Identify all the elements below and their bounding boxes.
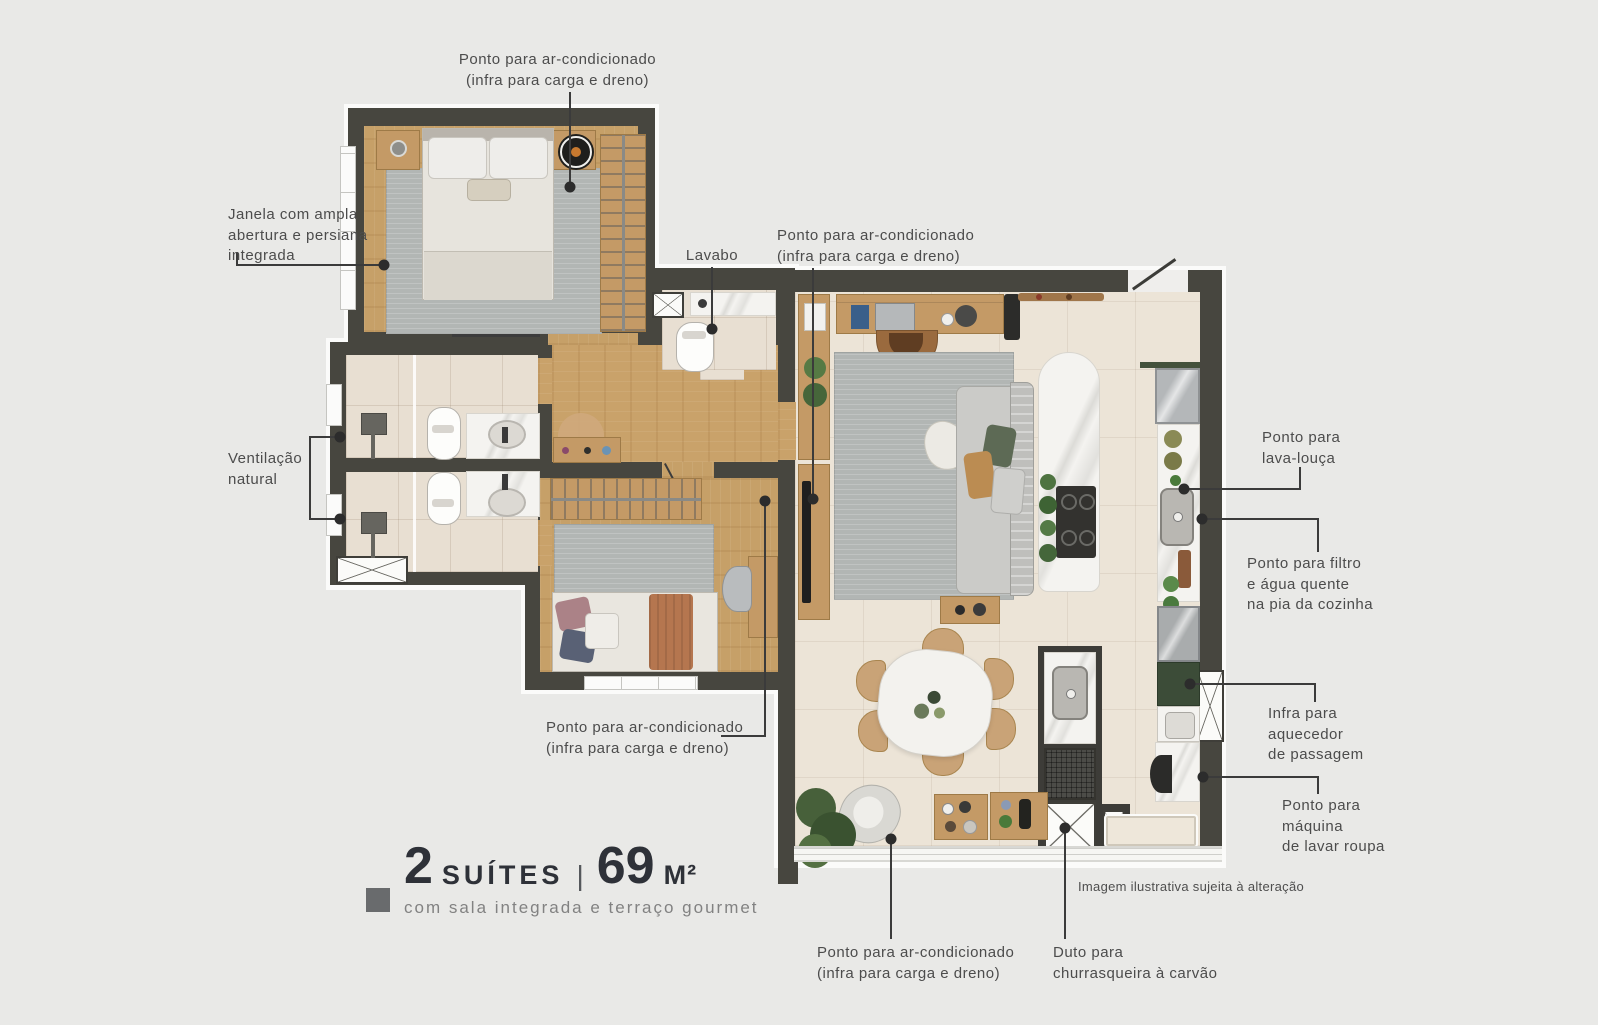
rack-item xyxy=(1036,294,1042,300)
dot-vent-2 xyxy=(335,514,346,525)
bathroom1-faucet xyxy=(502,427,508,443)
bathroom1-glass-divider xyxy=(413,355,416,458)
toilet-seat-line xyxy=(682,331,706,339)
label-ac-suite2: Ponto para ar-condicionado (infra para c… xyxy=(546,718,743,759)
lavabo-door-opening xyxy=(700,370,744,380)
island-plant xyxy=(1040,520,1056,536)
toilet-seat-line xyxy=(432,425,454,433)
bathroom2-shower-head-icon xyxy=(361,512,387,534)
title-subtitle: com sala integrada e terraço gourmet xyxy=(404,898,759,918)
desk-side-cabinet xyxy=(1004,294,1020,340)
entry-wall-rack xyxy=(1018,293,1104,301)
shaft-lavabo xyxy=(652,292,684,318)
laundry-sink xyxy=(1157,706,1200,742)
coffee-item xyxy=(942,803,954,815)
title-main: 2 SUÍTES | 69 M² xyxy=(404,840,759,892)
sofa-side-table xyxy=(940,596,1000,624)
bathroom2-faucet xyxy=(502,474,508,490)
coffee-item xyxy=(945,821,956,832)
decor-dot xyxy=(562,447,569,454)
table-decor xyxy=(933,707,945,719)
lavabo-faucet xyxy=(698,299,707,308)
counter-plant xyxy=(1164,430,1182,448)
dot-lavalouca xyxy=(1179,484,1190,495)
suite1-bed xyxy=(422,128,554,300)
label-ac-terraco: Ponto para ar-condicionado (infra para c… xyxy=(817,943,1014,984)
bar-plant xyxy=(999,815,1012,828)
desk-mug xyxy=(941,313,954,326)
bathroom2-toilet xyxy=(427,472,461,525)
burner xyxy=(1079,494,1095,510)
rack-item xyxy=(1066,294,1072,300)
table-decor xyxy=(927,690,941,704)
bbq-sink xyxy=(1052,666,1088,720)
decor-dot xyxy=(602,446,611,455)
dot-aquecedor xyxy=(1185,679,1196,690)
title-area: 69 xyxy=(597,840,655,892)
leader-maquina-h xyxy=(1203,776,1319,778)
laptop xyxy=(875,303,915,331)
leader-duto xyxy=(1064,828,1066,939)
shaft-kitchen-wall xyxy=(1196,670,1224,742)
label-lavabo: Lavabo xyxy=(672,246,752,267)
suite1-wardrobe xyxy=(600,134,646,332)
dot-maquina xyxy=(1198,772,1209,783)
corridor-console xyxy=(553,437,621,463)
label-ac-suite1: Ponto para ar-condicionado (infra para c… xyxy=(440,50,675,91)
cutting-board xyxy=(1178,550,1191,588)
leader-ac-terraco xyxy=(890,839,892,939)
tv-console xyxy=(798,464,830,620)
shelf-book xyxy=(804,303,826,331)
label-aquecedor: Infra para aquecedor de passagem xyxy=(1268,704,1364,766)
dot-filtro xyxy=(1197,514,1208,525)
bar-item xyxy=(1001,800,1011,810)
island-plant xyxy=(1040,474,1056,490)
disclaimer-text: Imagem ilustrativa sujeita à alteração xyxy=(1078,879,1304,894)
dot-ac-living xyxy=(808,494,819,505)
burner xyxy=(1061,494,1077,510)
label-janela: Janela com ampla abertura e persiana int… xyxy=(228,205,368,267)
counter-burner-green xyxy=(1163,576,1179,592)
shaft-bathrooms xyxy=(336,556,408,584)
suite2-window xyxy=(584,676,698,690)
leader-ac-suite2-v xyxy=(764,501,766,737)
suite2-wardrobe-rail xyxy=(551,498,701,501)
dot-duto xyxy=(1060,823,1071,834)
suite2-rug xyxy=(554,524,714,594)
dot-lavabo xyxy=(707,324,718,335)
side-table-item xyxy=(955,605,965,615)
title-bullet-square xyxy=(366,888,390,912)
suite2-bed xyxy=(552,592,718,672)
bathroom2-glass-divider xyxy=(413,472,416,572)
hall-living-opening xyxy=(778,402,796,460)
leader-lavalouca-v xyxy=(1299,467,1301,489)
suite2-wardrobe xyxy=(550,478,702,520)
leader-ac-suite1 xyxy=(569,92,571,187)
coffee-item xyxy=(963,820,977,834)
leader-aquecedor-v xyxy=(1314,683,1316,702)
leader-filtro-h xyxy=(1202,518,1319,520)
suite1-blanket-fold xyxy=(424,251,552,300)
suite2-pillow xyxy=(585,613,619,649)
island-plant xyxy=(1039,496,1057,514)
dot-ac-suite1 xyxy=(565,182,576,193)
title-separator: | xyxy=(572,862,587,892)
suite1-pillow-right xyxy=(489,137,548,179)
suite2-desk-chair xyxy=(722,566,752,612)
thermos xyxy=(1019,799,1031,829)
shelf-plant xyxy=(803,383,827,407)
suite2-desk xyxy=(748,556,778,638)
dot-ac-suite2 xyxy=(760,496,771,507)
decor-dot xyxy=(584,447,591,454)
bathroom2-sink xyxy=(488,488,526,517)
dot-janela xyxy=(379,260,390,271)
laundry-sink-basin xyxy=(1165,712,1195,739)
bathroom1-shower-arm xyxy=(371,433,375,459)
label-duto: Duto para churrasqueira à carvão xyxy=(1053,943,1217,984)
title-type: SUÍTES xyxy=(442,862,564,892)
label-maquina: Ponto para máquina de lavar roupa xyxy=(1282,796,1385,858)
title-content: 2 SUÍTES | 69 M² com sala integrada e te… xyxy=(404,840,759,918)
suite1-wardrobe-rail xyxy=(622,135,625,331)
suite1-pillow-left xyxy=(428,137,487,179)
burner xyxy=(1079,530,1095,546)
notebook xyxy=(851,305,869,329)
label-filtro: Ponto para filtro e água quente na pia d… xyxy=(1247,554,1373,616)
bbq-sink-drain xyxy=(1066,689,1076,699)
bathroom1-shower-head-icon xyxy=(361,413,387,435)
suite1-ceiling-fan-icon xyxy=(560,136,592,168)
armchair-cushion xyxy=(849,793,887,833)
burner xyxy=(1061,530,1077,546)
bathroom1-door-opening xyxy=(538,358,552,404)
leader-filtro-v xyxy=(1317,518,1319,552)
table-decor xyxy=(913,703,929,719)
leader-vent-v xyxy=(309,436,311,520)
dot-ac-terraco xyxy=(886,834,897,845)
leader-lavabo xyxy=(711,267,713,328)
fridge xyxy=(1155,368,1200,424)
desk-lamp xyxy=(955,305,977,327)
terrace-glass-railing xyxy=(794,846,1222,862)
terrace-sideboard-bar xyxy=(990,792,1048,840)
sofa-pillow-gray xyxy=(990,467,1026,516)
island-plant xyxy=(1039,544,1057,562)
bathroom2-door-opening xyxy=(538,520,552,566)
kitchen-sink xyxy=(1160,488,1194,546)
label-ac-living: Ponto para ar-condicionado (infra para c… xyxy=(777,226,974,267)
desk xyxy=(836,294,1004,334)
leader-ac-living xyxy=(812,268,814,499)
terrace-bench xyxy=(1104,814,1198,848)
terrace-sideboard-coffee xyxy=(934,794,988,840)
leader-maquina-v xyxy=(1317,776,1319,794)
title-block: 2 SUÍTES | 69 M² com sala integrada e te… xyxy=(366,840,759,918)
dot-vent-1 xyxy=(335,432,346,443)
label-lava-louca: Ponto para lava-louça xyxy=(1262,428,1340,469)
suite1-lamp xyxy=(390,140,407,157)
fan-center xyxy=(571,147,581,157)
title-number: 2 xyxy=(404,840,433,892)
leader-aquecedor-h xyxy=(1190,683,1316,685)
title-area-unit: M² xyxy=(664,862,697,892)
shelf-plant xyxy=(804,357,826,379)
charcoal-grill xyxy=(1044,748,1096,800)
sink-drain xyxy=(1173,512,1183,522)
floorplan-page: Ponto para ar-condicionado (infra para c… xyxy=(0,0,1598,1025)
side-table-item xyxy=(973,603,986,616)
suite1-door-opening xyxy=(548,333,638,345)
island-cooktop xyxy=(1056,486,1096,558)
toilet-seat-line xyxy=(432,499,454,507)
label-ventilacao: Ventilação natural xyxy=(228,449,302,490)
washing-machine xyxy=(1150,755,1172,793)
leader-lavalouca-h xyxy=(1184,488,1301,490)
suite1-door-leaf xyxy=(452,334,540,337)
suite1-accent-pillow xyxy=(467,179,511,201)
living-wall-shelf xyxy=(798,294,830,460)
bathroom2-shower-arm xyxy=(371,532,375,558)
bathroom1-toilet xyxy=(427,407,461,460)
bathroom1-vent-window xyxy=(326,384,342,426)
coffee-item xyxy=(959,801,971,813)
oven xyxy=(1157,606,1200,662)
counter-plant xyxy=(1164,452,1182,470)
suite2-blanket xyxy=(649,594,693,670)
